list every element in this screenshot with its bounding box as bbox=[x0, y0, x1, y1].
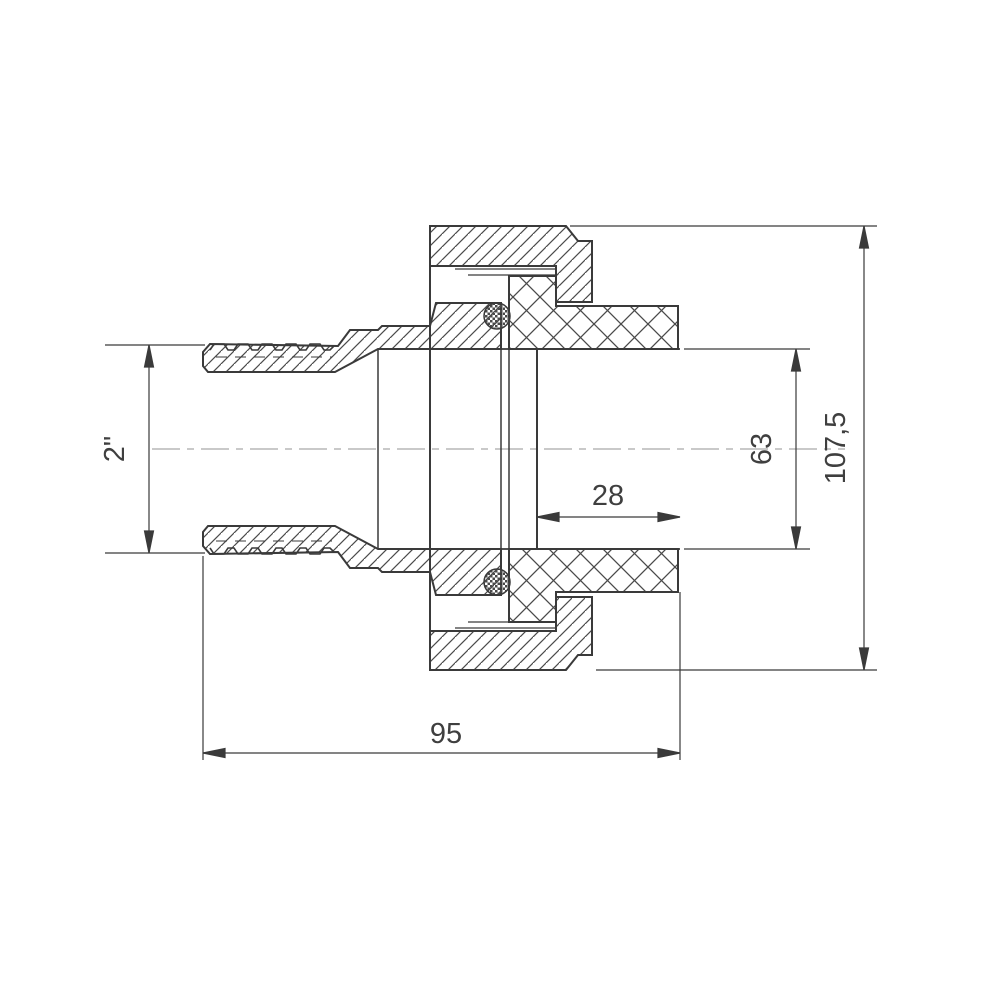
arrow-down bbox=[145, 531, 154, 553]
o-ring-top bbox=[484, 303, 510, 329]
arrow-down bbox=[860, 648, 869, 670]
label-socket-depth: 28 bbox=[592, 480, 624, 512]
label-total-height: 107,5 bbox=[820, 412, 852, 485]
arrow-up bbox=[860, 226, 869, 248]
adapter-lower-wall bbox=[203, 526, 501, 595]
drawing-canvas: 2" 107,5 63 28 95 bbox=[0, 0, 1000, 1000]
arrow-right bbox=[658, 513, 680, 522]
arrow-left bbox=[537, 513, 559, 522]
adapter-upper-wall bbox=[203, 303, 501, 372]
arrow-up bbox=[145, 345, 154, 367]
arrow-right bbox=[658, 749, 680, 758]
label-socket-diameter: 63 bbox=[746, 433, 778, 465]
technical-drawing-svg: 2" 107,5 63 28 95 bbox=[0, 0, 1000, 1000]
dimension-total-height: 107,5 bbox=[570, 226, 877, 670]
body-upper-band bbox=[509, 276, 678, 349]
arrow-down bbox=[792, 527, 801, 549]
body-lower-band bbox=[509, 549, 678, 622]
label-body-length: 95 bbox=[430, 718, 462, 750]
arrow-left bbox=[203, 749, 225, 758]
arrow-up bbox=[792, 349, 801, 371]
dimension-socket-depth: 28 bbox=[537, 480, 680, 522]
o-ring-bottom bbox=[484, 569, 510, 595]
label-thread-size: 2" bbox=[99, 436, 131, 462]
